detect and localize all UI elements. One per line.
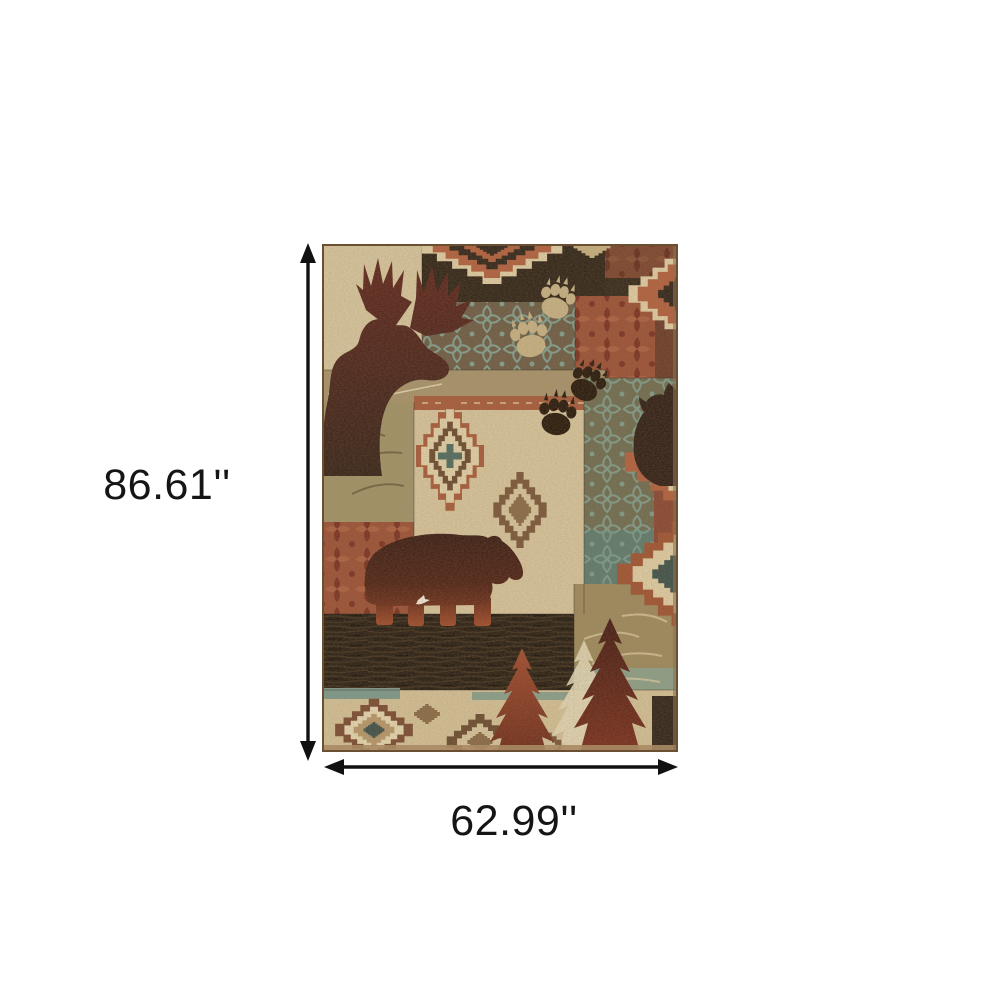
rug-image: [322, 244, 678, 752]
horizontal-dimension-arrow-icon: [316, 753, 684, 781]
product-figure: 86.61'' 62.99'': [0, 0, 1000, 1000]
width-dimension-label: 62.99'': [402, 797, 626, 846]
fabric-texture: [322, 244, 678, 752]
height-dimension-label: 86.61'': [58, 461, 276, 510]
vertical-dimension-arrow-icon: [294, 242, 322, 762]
